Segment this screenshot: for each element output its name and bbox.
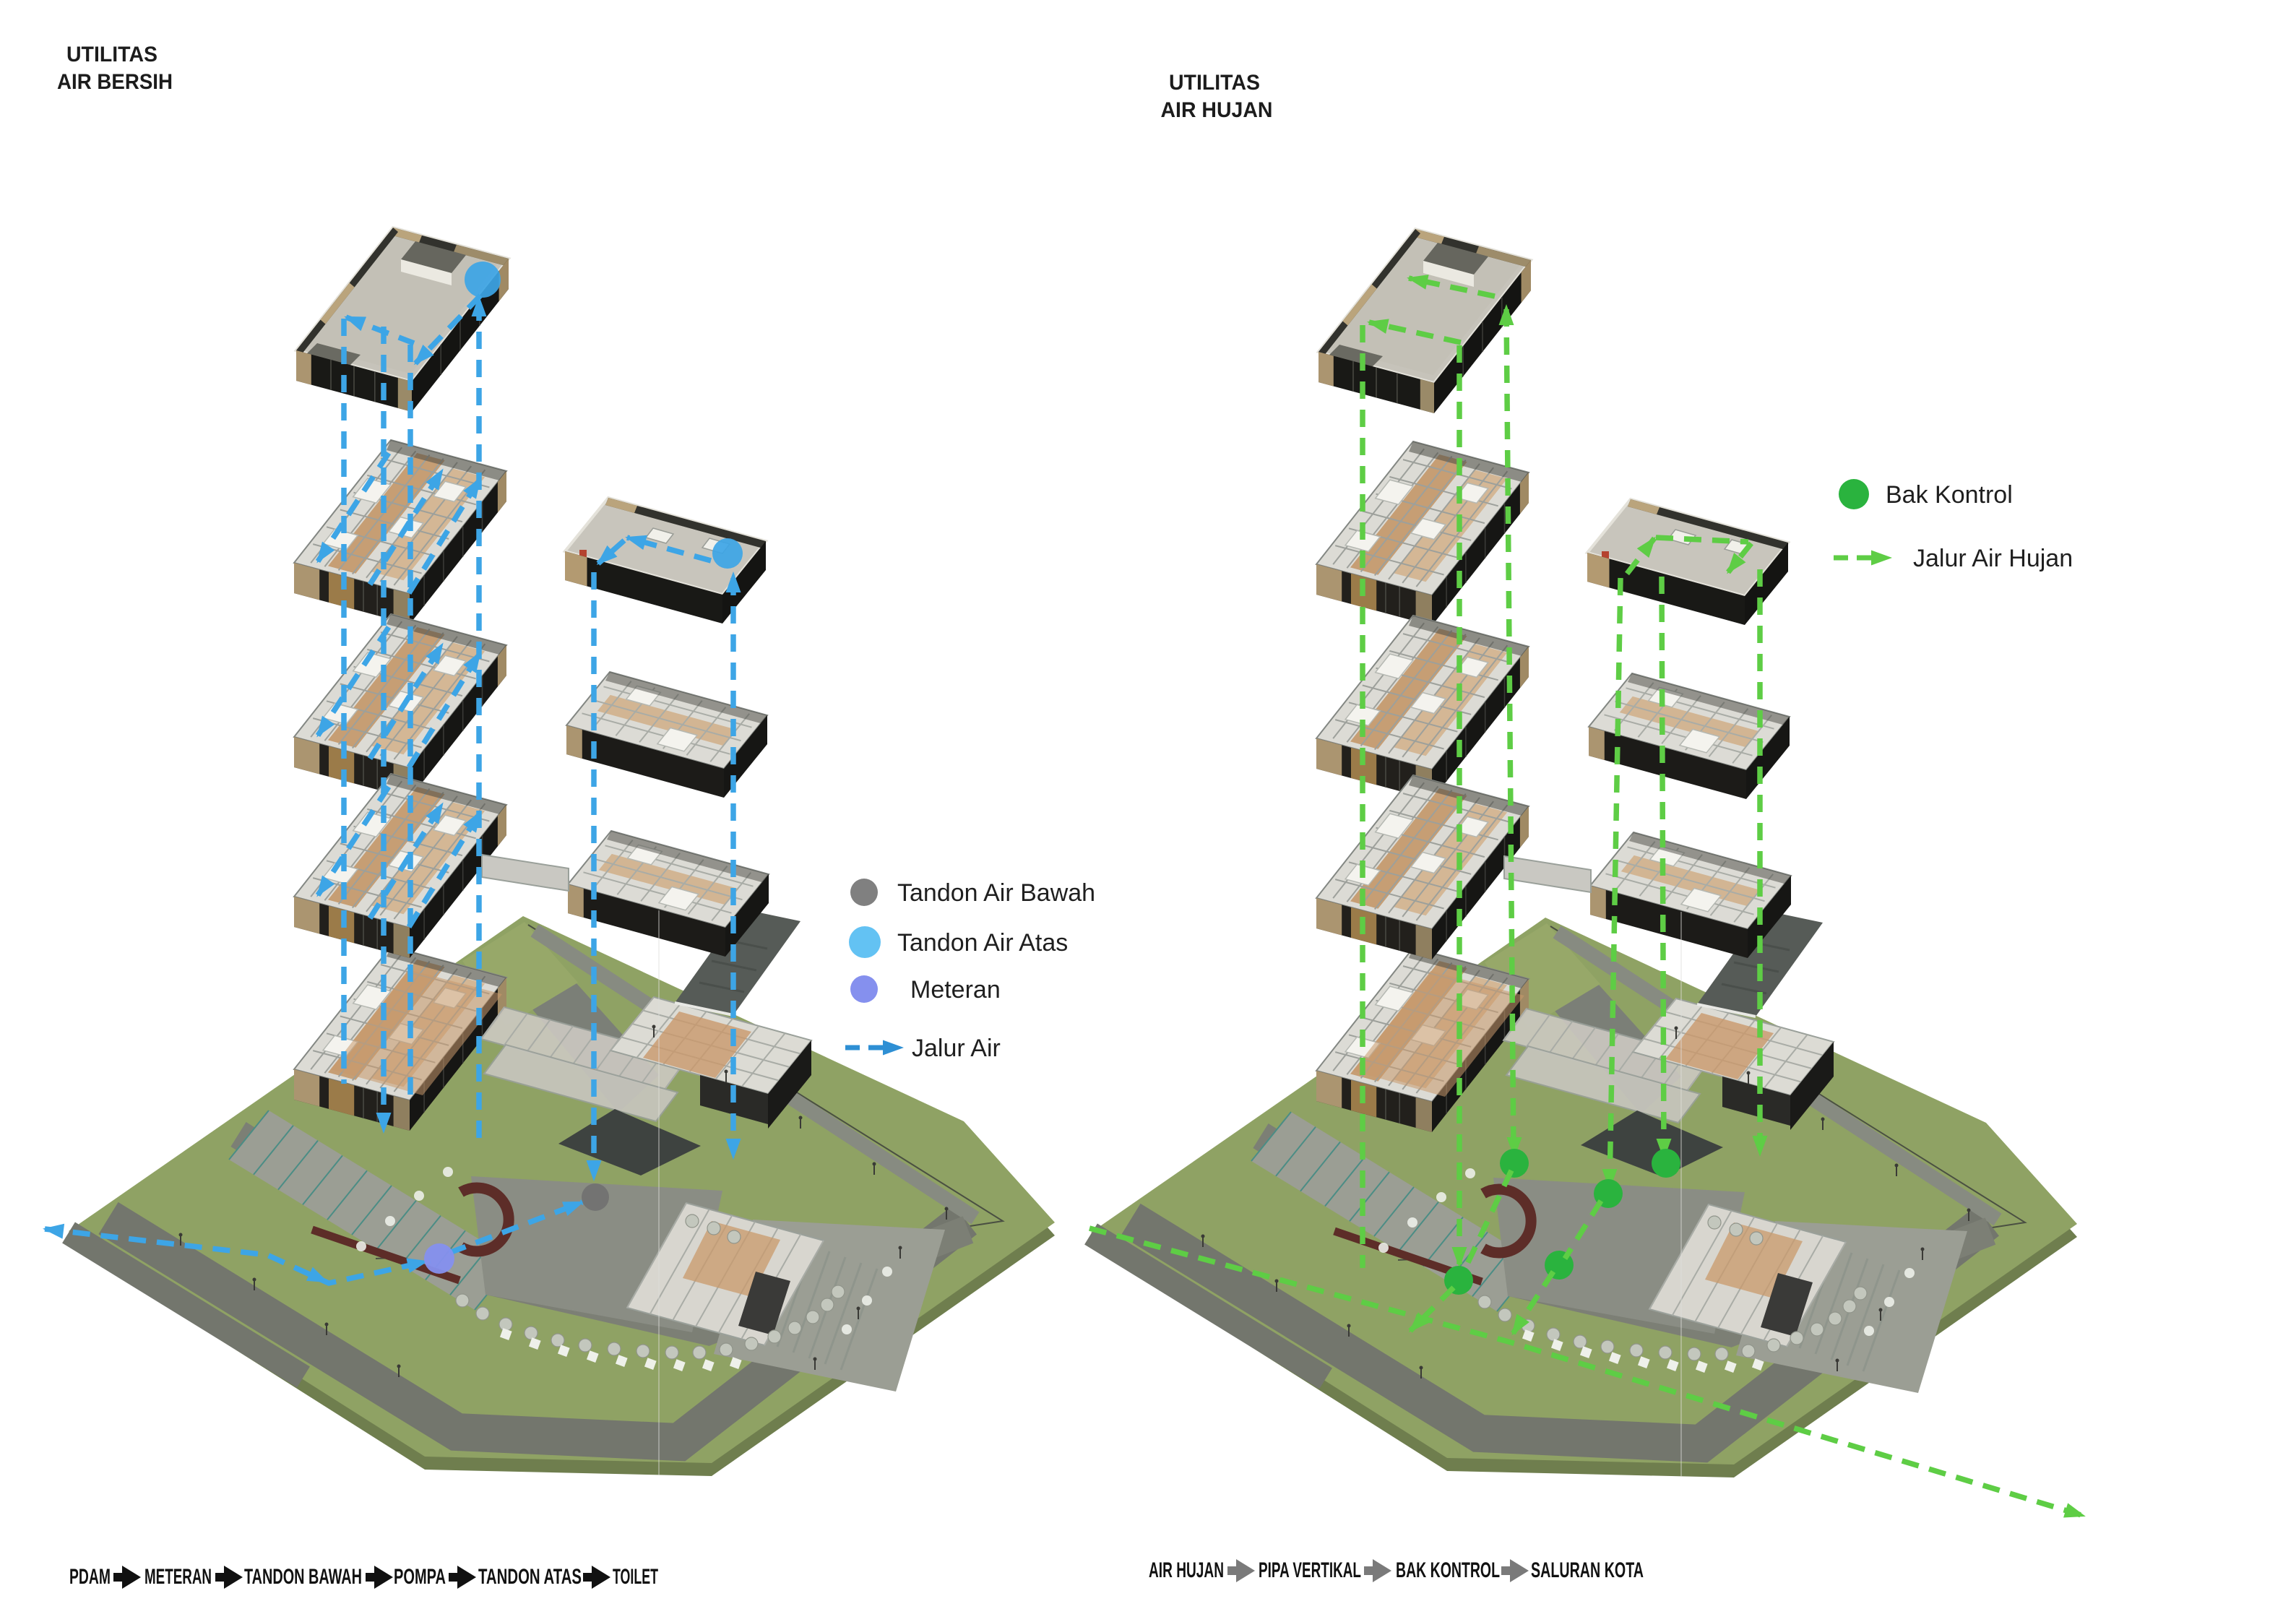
svg-text:Jalur Air: Jalur Air: [912, 1035, 1001, 1062]
svg-text:TANDON BAWAH: TANDON BAWAH: [244, 1565, 362, 1589]
svg-text:METERAN: METERAN: [144, 1565, 212, 1589]
svg-text:TANDON ATAS: TANDON ATAS: [478, 1565, 582, 1589]
svg-text:Tandon Air Atas: Tandon Air Atas: [897, 929, 1068, 957]
svg-text:AIR BERSIH: AIR BERSIH: [57, 70, 173, 94]
svg-text:UTILITAS: UTILITAS: [1169, 71, 1260, 95]
svg-text:Tandon Air Bawah: Tandon Air Bawah: [897, 879, 1095, 907]
svg-text:Bak Kontrol: Bak Kontrol: [1886, 481, 2013, 509]
svg-text:AIR HUJAN: AIR HUJAN: [1161, 98, 1273, 122]
svg-text:SALURAN KOTA: SALURAN KOTA: [1531, 1558, 1644, 1582]
svg-text:POMPA: POMPA: [394, 1565, 446, 1589]
svg-text:Meteran: Meteran: [910, 976, 1001, 1004]
svg-text:AIR HUJAN: AIR HUJAN: [1149, 1558, 1224, 1582]
svg-text:PIPA VERTIKAL: PIPA VERTIKAL: [1259, 1558, 1361, 1582]
svg-text:UTILITAS: UTILITAS: [66, 43, 157, 66]
svg-text:Jalur Air Hujan: Jalur Air Hujan: [1913, 545, 2073, 572]
svg-text:BAK KONTROL: BAK KONTROL: [1396, 1558, 1500, 1582]
svg-text:PDAM: PDAM: [69, 1565, 111, 1589]
svg-text:TOILET: TOILET: [613, 1565, 658, 1589]
